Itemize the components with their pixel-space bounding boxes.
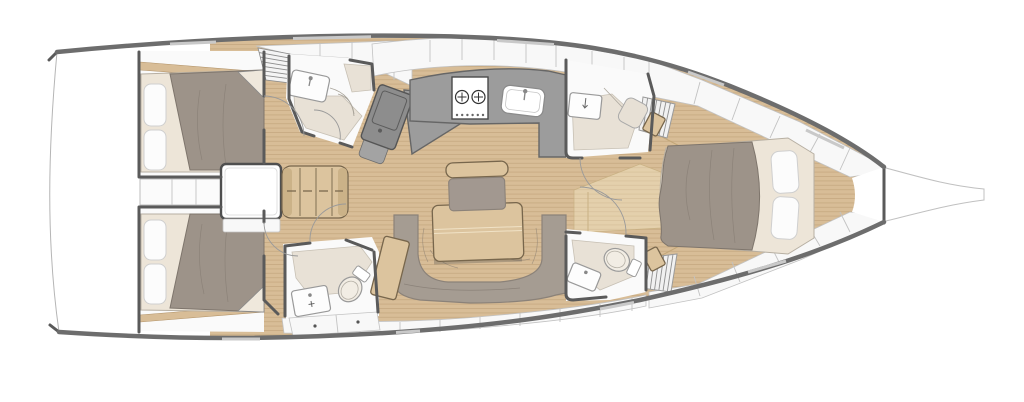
companionway-box [221,164,281,219]
stove-two-burner [452,77,488,119]
pillow [144,130,166,170]
dining-table [432,202,524,264]
pillow [144,84,166,126]
pillow [771,196,800,240]
armrest [338,168,347,216]
yacht-floorplan [0,0,1024,402]
yacht-floorplan-svg [0,0,1024,402]
armrest [283,168,292,216]
shelf [223,219,280,232]
bowsprit [886,168,984,221]
shelf-lockers [140,179,221,205]
pillow [144,264,166,304]
forward-cabin-bed [659,138,814,254]
pillow [144,220,166,260]
mid-head-port [283,237,380,336]
sink-basin [291,285,331,317]
galley-sink-basin [500,85,545,118]
aft-cabin-starboard [139,51,264,177]
transom-outline [50,52,59,332]
forward-head-lower [566,229,646,301]
pillow [771,150,800,194]
chair-cushion [449,177,506,211]
sink-basin [568,92,602,119]
saloon-slatted-bench [282,166,348,218]
chair-back-rail [446,161,508,178]
